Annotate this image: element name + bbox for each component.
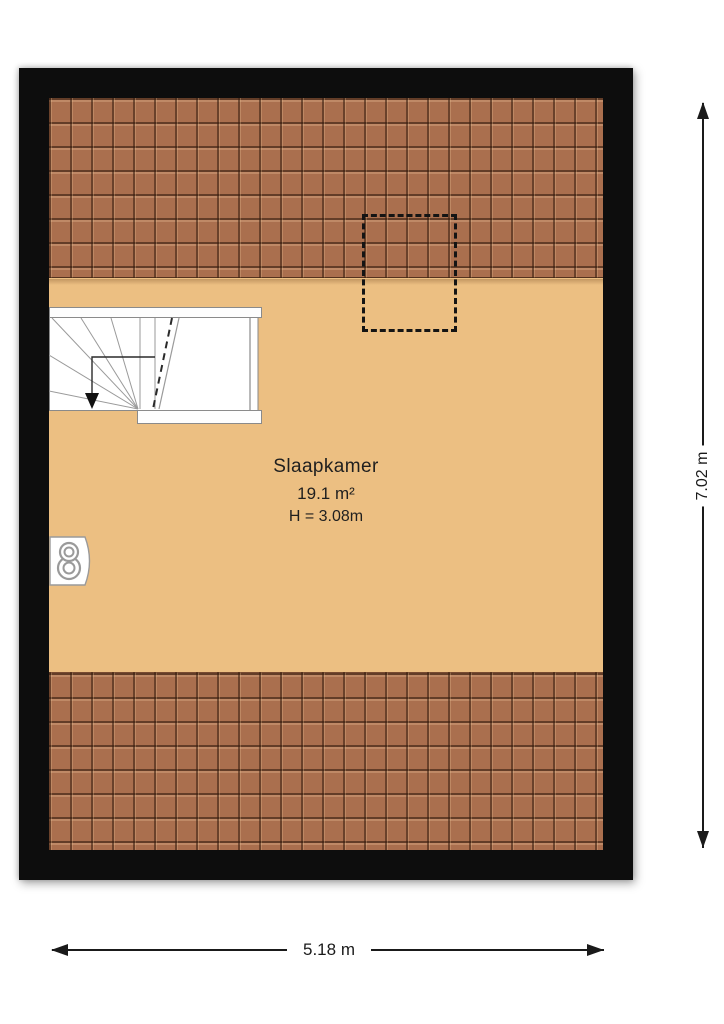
skylight-outline [362,214,457,332]
roof-eave-shadow [49,279,603,285]
dimension-width-label: 5.18 m [287,938,371,962]
dimension-height-label: 7.02 m [686,446,720,507]
room-label: Slaapkamer 19.1 m² H = 3.08m [49,456,603,526]
room-ceiling-height: H = 3.08m [49,508,603,526]
plan-frame: Slaapkamer 19.1 m² H = 3.08m [19,68,633,880]
dimension-arrow-right-icon [587,944,604,956]
room-area: 19.1 m² [49,484,603,504]
dimension-arrow-down-icon [697,831,709,848]
dimension-arrow-left-icon [51,944,68,956]
roof-tiles-bottom [49,672,603,850]
staircase [49,305,262,424]
roof-tiles-top [49,98,603,278]
room-name: Slaapkamer [49,456,603,478]
heater-unit [49,536,94,586]
dimension-arrow-up-icon [697,102,709,119]
room-interior: Slaapkamer 19.1 m² H = 3.08m [49,98,603,850]
floorplan-canvas: Slaapkamer 19.1 m² H = 3.08m 7.02 m 5.18… [0,0,724,1024]
